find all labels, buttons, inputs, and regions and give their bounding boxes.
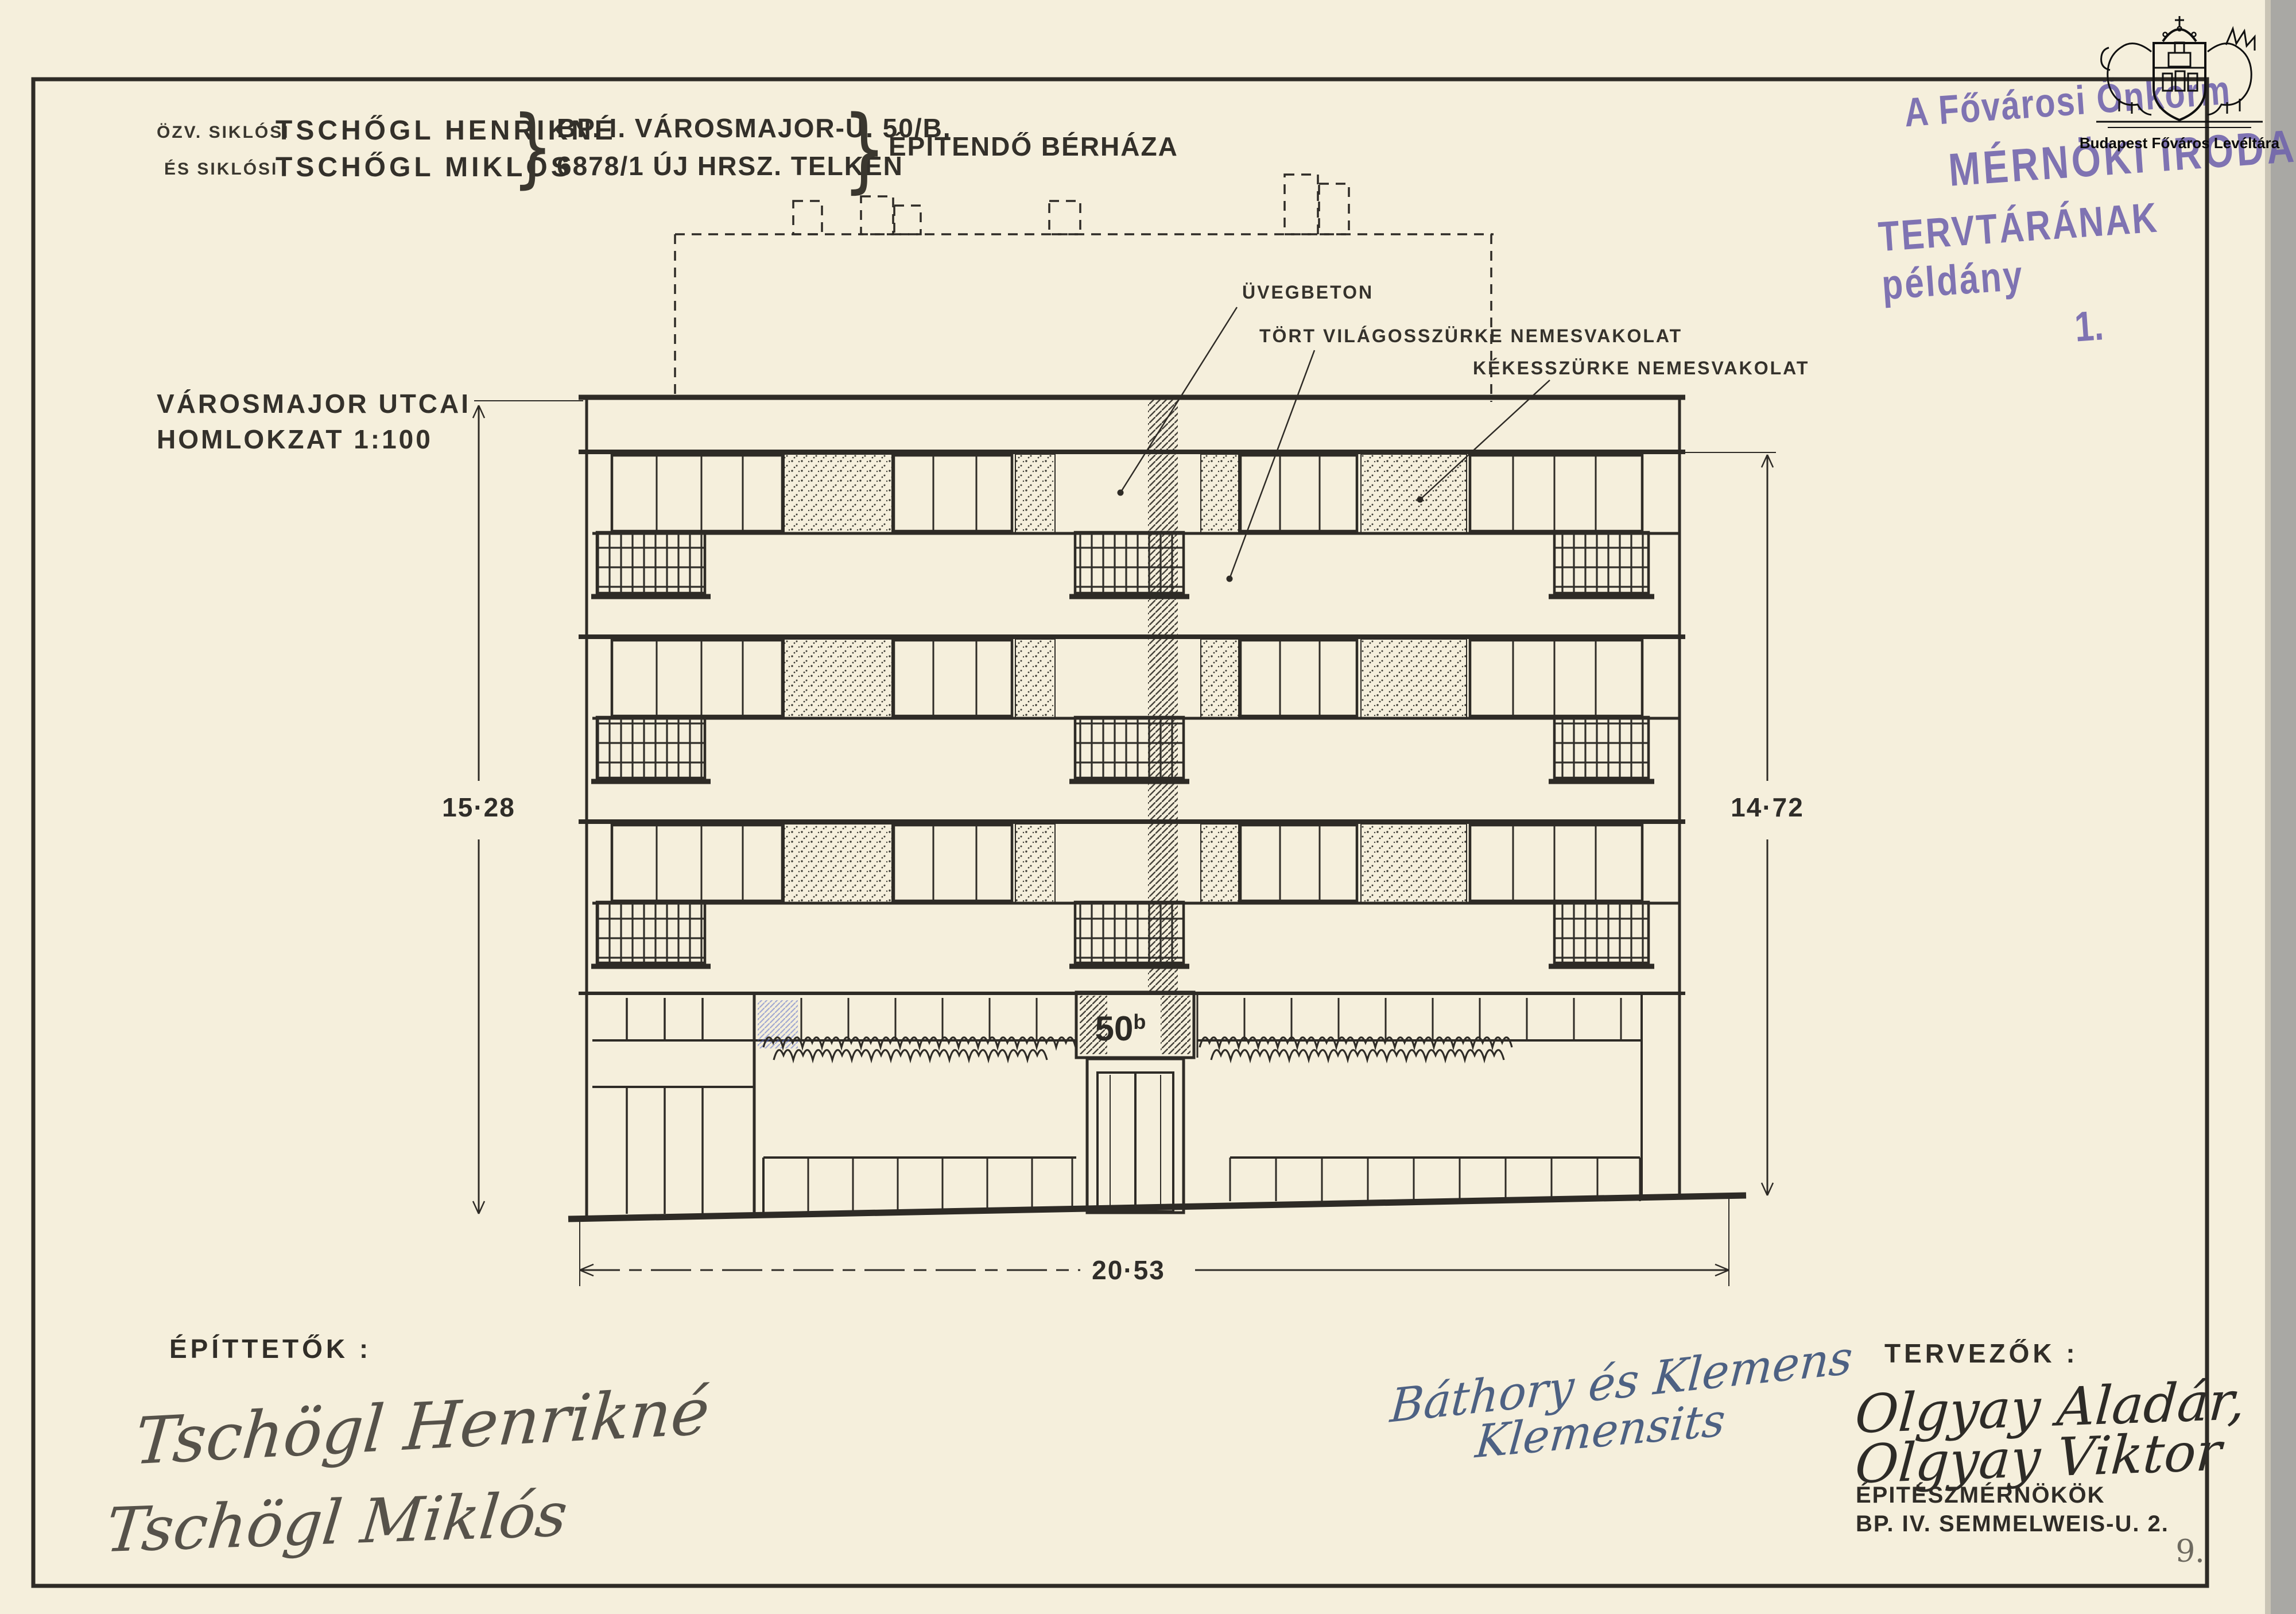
view-title: VÁROSMAJOR UTCAI HOMLOKZAT 1:100 [157, 386, 471, 457]
house-number: 50 [1095, 1009, 1134, 1048]
archive-crest-logo [2096, 16, 2263, 127]
brace-owners: } [512, 98, 553, 198]
house-number-sign: 50b [1095, 1009, 1146, 1048]
archive-logo-caption: Budapest Főváros Levéltára [2080, 134, 2280, 152]
dimension-bottom: 20·53 [1092, 1255, 1165, 1285]
label-glass-block: ÜVEGBETON [1242, 282, 1374, 303]
dimension-right: 14·72 [1731, 792, 1804, 822]
designers-title: ÉPITÉSZMÉRNÖKÖK [1856, 1483, 2105, 1508]
designers-address: BP. IV. SEMMELWEIS-U. 2. [1856, 1511, 2169, 1537]
owner-prefix-2: ÉS SIKLÓSI [164, 160, 278, 179]
designers-heading: TERVEZŐK : [1884, 1338, 2078, 1369]
house-number-suffix: b [1133, 1010, 1146, 1034]
view-title-line-2: HOMLOKZAT 1:100 [157, 421, 471, 457]
sheet-number: 9. [2175, 1532, 2206, 1570]
dimension-left: 15·28 [442, 792, 515, 822]
brace-project: } [843, 95, 886, 203]
owner-prefix-1: ÖZV. SIKLÓSI [157, 123, 290, 142]
clients-heading: ÉPÍTTETŐK : [169, 1333, 371, 1364]
label-light-grey-plaster: TÖRT VILÁGOSSZÜRKE NEMESVAKOLAT [1259, 326, 1682, 346]
project-title: ÉPITENDŐ BÉRHÁZA [889, 131, 1178, 162]
facade-drawing-svg: 15·28 14·72 20·53 ÜVEGBETON TÖRT VILÁGOS… [0, 0, 2296, 1614]
view-title-line-1: VÁROSMAJOR UTCAI [157, 386, 471, 421]
scanned-blueprint: A Fővárosi Önkorm MÉRNÖKI IRODA TERVTÁRÁ… [0, 0, 2296, 1614]
griffin-supporter-icon [2208, 44, 2251, 115]
label-blue-grey-plaster: KÉKESSZÜRKE NEMESVAKOLAT [1473, 358, 1809, 378]
